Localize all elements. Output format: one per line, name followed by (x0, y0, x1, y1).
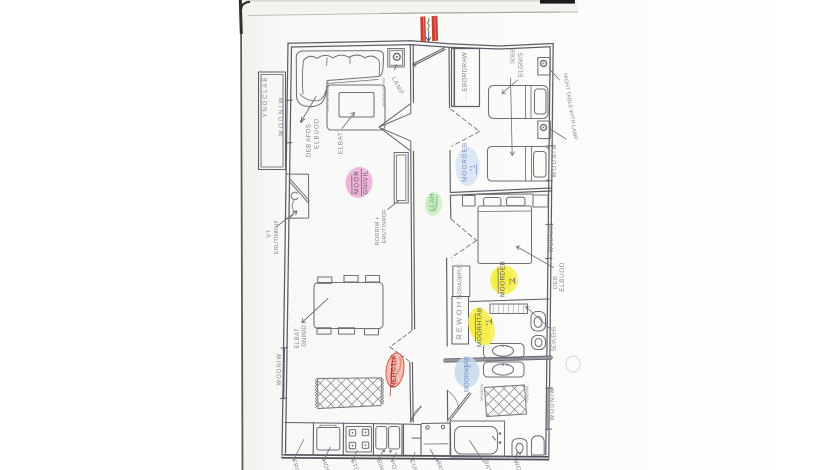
svg-text:SDEB: SDEB (510, 48, 516, 64)
svg-text:WODNIW: WODNIW (550, 387, 556, 421)
svg-text:ELBUOD: ELBUOD (559, 262, 566, 292)
svg-text:ELGNIS: ELGNIS (517, 53, 524, 78)
svg-text:MOORDEB: MOORDEB (500, 261, 507, 297)
svg-text:°1: °1 (469, 164, 477, 171)
svg-text:WODNIW: WODNIW (549, 224, 555, 253)
svg-text:WODNIW: WODNIW (279, 95, 285, 136)
svg-text:SEVLEHS: SEVLEHS (552, 326, 558, 351)
svg-text:GNIVIL: GNIVIL (362, 170, 369, 194)
svg-text:ERUTINRUF: ERUTINRUF (274, 219, 280, 254)
svg-text:REWOHS: REWOHS (454, 292, 463, 340)
svg-text:VWMVWM: VWMVWM (526, 386, 530, 403)
svg-text:WODNIW: WODNIW (552, 143, 558, 178)
svg-text:ELBUOD: ELBUOD (313, 118, 320, 149)
svg-text:VT: VT (267, 229, 273, 237)
svg-text:ERUTINROF: ERUTINROF (382, 209, 388, 244)
svg-text:MOORHTAB: MOORHTAB (465, 357, 471, 392)
svg-text:LLAH: LLAH (429, 193, 436, 212)
svg-text:MOOR: MOOR (353, 170, 360, 194)
svg-text:ELBAT: ELBAT (337, 131, 344, 154)
svg-text:DRAOBPUC: DRAOBPUC (458, 263, 464, 294)
svg-text:GNINID: GNINID (302, 325, 308, 347)
svg-text:WODNIW: WODNIW (277, 353, 283, 386)
svg-text:DEB AFOS: DEB AFOS (305, 124, 312, 157)
svg-text:MVWMVWMVWM: MVWMVWMVWM (382, 78, 386, 107)
svg-text:MVWMVW: MVWMVW (480, 383, 484, 401)
svg-text:RORRIM +: RORRIM + (375, 216, 381, 245)
svg-text:ELBAT: ELBAT (295, 328, 301, 349)
svg-text:YNOCLAB: YNOCLAB (262, 76, 269, 117)
svg-text:MOORDEB: MOORDEB (462, 142, 469, 182)
svg-text:WMVWMVWMVWM: WMVWMVWMVWM (326, 79, 330, 111)
svg-text:....EBORDRAW: ....EBORDRAW (461, 52, 468, 100)
svg-text:MOORHTAB: MOORHTAB (477, 307, 484, 347)
